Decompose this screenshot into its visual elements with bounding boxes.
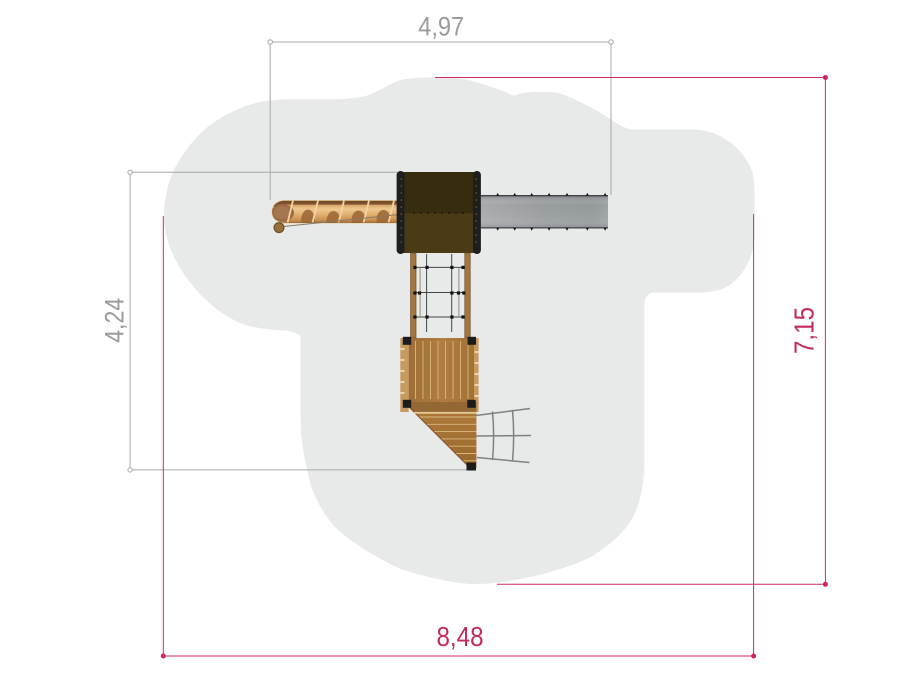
svg-text:4,97: 4,97 [418,12,464,42]
svg-text:8,48: 8,48 [437,621,484,652]
svg-text:7,15: 7,15 [789,307,820,354]
svg-text:4,24: 4,24 [100,298,130,343]
